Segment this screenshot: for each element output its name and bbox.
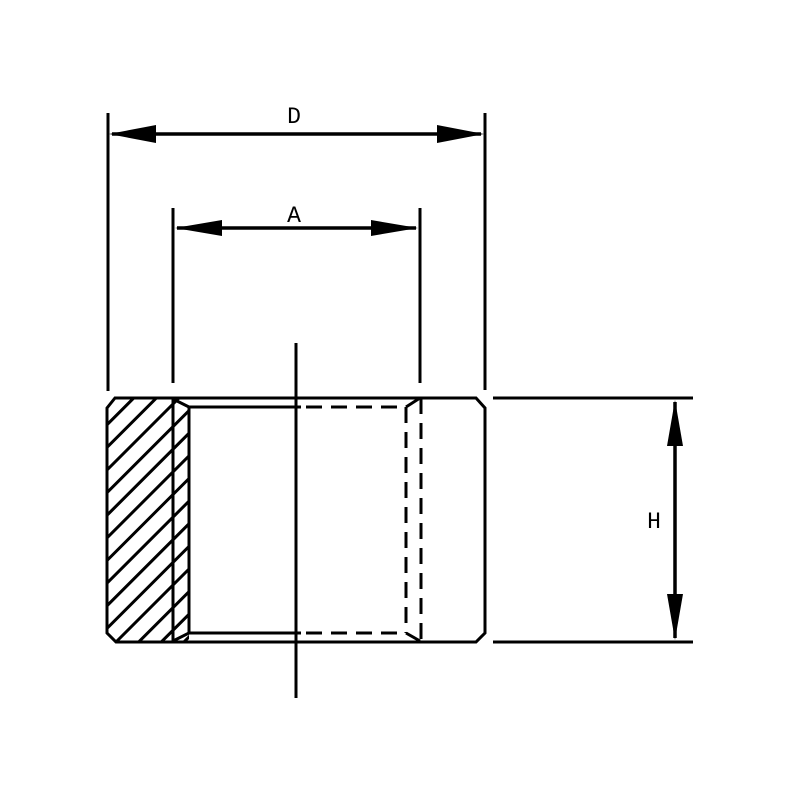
d-arrowhead-left	[109, 125, 156, 143]
a-dimension-label: A	[287, 203, 301, 229]
d-dimension-label: D	[287, 104, 301, 130]
a-arrowhead-left	[175, 220, 222, 236]
h-arrowhead-top	[667, 400, 683, 446]
a-arrowhead-right	[371, 220, 418, 236]
dimension-h: H	[493, 398, 693, 642]
bore-chamfer-bottom-right	[406, 633, 420, 641]
d-arrowhead-right	[437, 125, 484, 143]
section-hatch-area	[107, 398, 189, 642]
h-dimension-label: H	[647, 509, 661, 535]
technical-drawing-canvas: D A H	[0, 0, 800, 800]
h-arrowhead-bottom	[667, 594, 683, 640]
drawing-page: D A H	[0, 0, 800, 800]
